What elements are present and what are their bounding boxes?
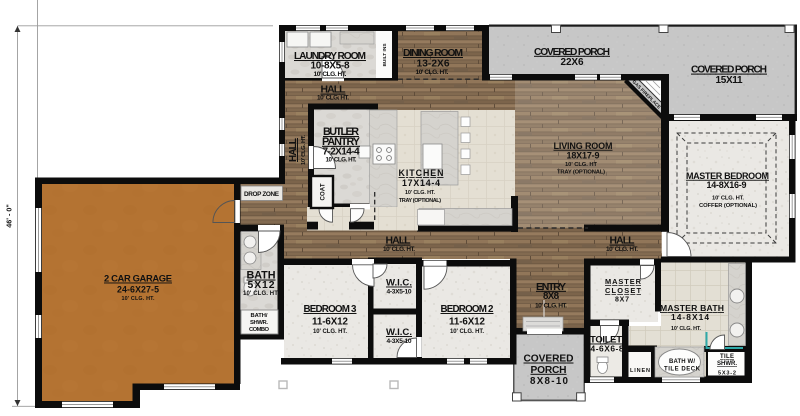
svg-text:22X6: 22X6 — [561, 57, 584, 68]
svg-text:4-3X5-10: 4-3X5-10 — [387, 338, 412, 345]
svg-text:SHWR.: SHWR. — [250, 320, 268, 326]
svg-text:BEDROOM 2: BEDROOM 2 — [441, 304, 495, 315]
svg-text:8X7: 8X7 — [615, 296, 629, 303]
svg-text:DINING ROOM: DINING ROOM — [403, 48, 463, 59]
svg-text:5X12: 5X12 — [248, 280, 275, 291]
svg-text:BEDROOM 3: BEDROOM 3 — [304, 304, 358, 315]
svg-text:BUILT INS: BUILT INS — [382, 43, 388, 67]
svg-text:KITCHEN: KITCHEN — [399, 168, 444, 178]
svg-text:10' CLG. HT.: 10' CLG. HT. — [535, 302, 567, 309]
svg-text:HALL: HALL — [288, 138, 299, 162]
svg-text:4-6X6-8: 4-6X6-8 — [591, 344, 624, 354]
svg-text:10' CLG. HT.: 10' CLG. HT. — [416, 69, 449, 76]
svg-text:5X3-2: 5X3-2 — [718, 370, 736, 376]
svg-text:COVERED: COVERED — [524, 354, 574, 365]
svg-text:18X17-9: 18X17-9 — [567, 150, 600, 160]
svg-text:13-2X6: 13-2X6 — [417, 59, 450, 70]
svg-text:TRAY (OPTIONAL): TRAY (OPTIONAL) — [557, 170, 605, 176]
svg-text:10-8X5-8: 10-8X5-8 — [311, 61, 350, 72]
svg-text:COFFER (OPTIONAL): COFFER (OPTIONAL) — [699, 203, 757, 209]
svg-text:10' CLG. HT.: 10' CLG. HT. — [383, 246, 415, 253]
svg-text:PORCH: PORCH — [531, 365, 567, 376]
svg-text:10' CLG. HT.: 10' CLG. HT. — [671, 326, 702, 332]
svg-text:DROP ZONE: DROP ZONE — [244, 191, 280, 198]
svg-text:TILE DECK: TILE DECK — [664, 367, 701, 373]
svg-text:10' CLG. HT.: 10' CLG. HT. — [450, 329, 484, 335]
svg-text:10' CLG. HT.: 10' CLG. HT. — [326, 157, 357, 164]
svg-text:10' CLG. HT: 10' CLG. HT — [565, 162, 597, 168]
svg-text:10' CLG. HT.: 10' CLG. HT. — [606, 246, 638, 253]
svg-text:10' CLG. HT.: 10' CLG. HT. — [243, 291, 279, 297]
svg-text:BATH W/: BATH W/ — [669, 359, 695, 365]
svg-text:24-6X27-5: 24-6X27-5 — [117, 284, 159, 294]
svg-text:10' CLG. HT.: 10' CLG. HT. — [712, 196, 744, 202]
svg-text:46' - 0": 46' - 0" — [5, 204, 14, 228]
svg-text:8X8: 8X8 — [543, 291, 560, 302]
svg-text:10' CLG. HT.: 10' CLG. HT. — [301, 135, 307, 165]
svg-text:2 CAR GARAGE: 2 CAR GARAGE — [104, 273, 172, 284]
svg-text:11-6X12: 11-6X12 — [312, 316, 349, 327]
svg-text:LINEN: LINEN — [630, 368, 650, 374]
svg-text:10' CLG. HT.: 10' CLG. HT. — [313, 329, 347, 335]
svg-text:COVERED PORCH: COVERED PORCH — [534, 47, 610, 58]
svg-text:COAT: COAT — [321, 183, 327, 200]
svg-text:14-8X16-9: 14-8X16-9 — [707, 180, 747, 190]
svg-text:COMBO: COMBO — [249, 327, 269, 333]
svg-text:TRAY (OPTIONAL): TRAY (OPTIONAL) — [399, 198, 441, 204]
svg-text:TILE: TILE — [720, 354, 734, 360]
svg-text:LIVING ROOM: LIVING ROOM — [554, 141, 613, 151]
svg-text:10' CLG. HT.: 10' CLG. HT. — [405, 190, 436, 196]
svg-text:15X11: 15X11 — [716, 75, 743, 86]
svg-text:COVERED PORCH: COVERED PORCH — [691, 65, 767, 76]
svg-text:17X14-4: 17X14-4 — [402, 178, 440, 188]
svg-text:SHWR.: SHWR. — [717, 361, 737, 367]
svg-text:8X8-10: 8X8-10 — [530, 376, 569, 387]
svg-text:14-8X14: 14-8X14 — [671, 312, 709, 322]
svg-text:W.I.C.: W.I.C. — [386, 327, 412, 338]
svg-text:11-6X12: 11-6X12 — [449, 316, 486, 327]
svg-text:MASTER: MASTER — [605, 277, 642, 286]
svg-text:4-3X5-10: 4-3X5-10 — [387, 288, 412, 295]
svg-text:10' CLG. HT.: 10' CLG. HT. — [122, 296, 156, 302]
svg-text:W.I.C.: W.I.C. — [386, 278, 412, 289]
svg-text:BATH/: BATH/ — [251, 313, 268, 319]
svg-text:10' CLG. HT.: 10' CLG. HT. — [314, 71, 347, 78]
svg-text:10' CLG. HT.: 10' CLG. HT. — [317, 95, 349, 102]
